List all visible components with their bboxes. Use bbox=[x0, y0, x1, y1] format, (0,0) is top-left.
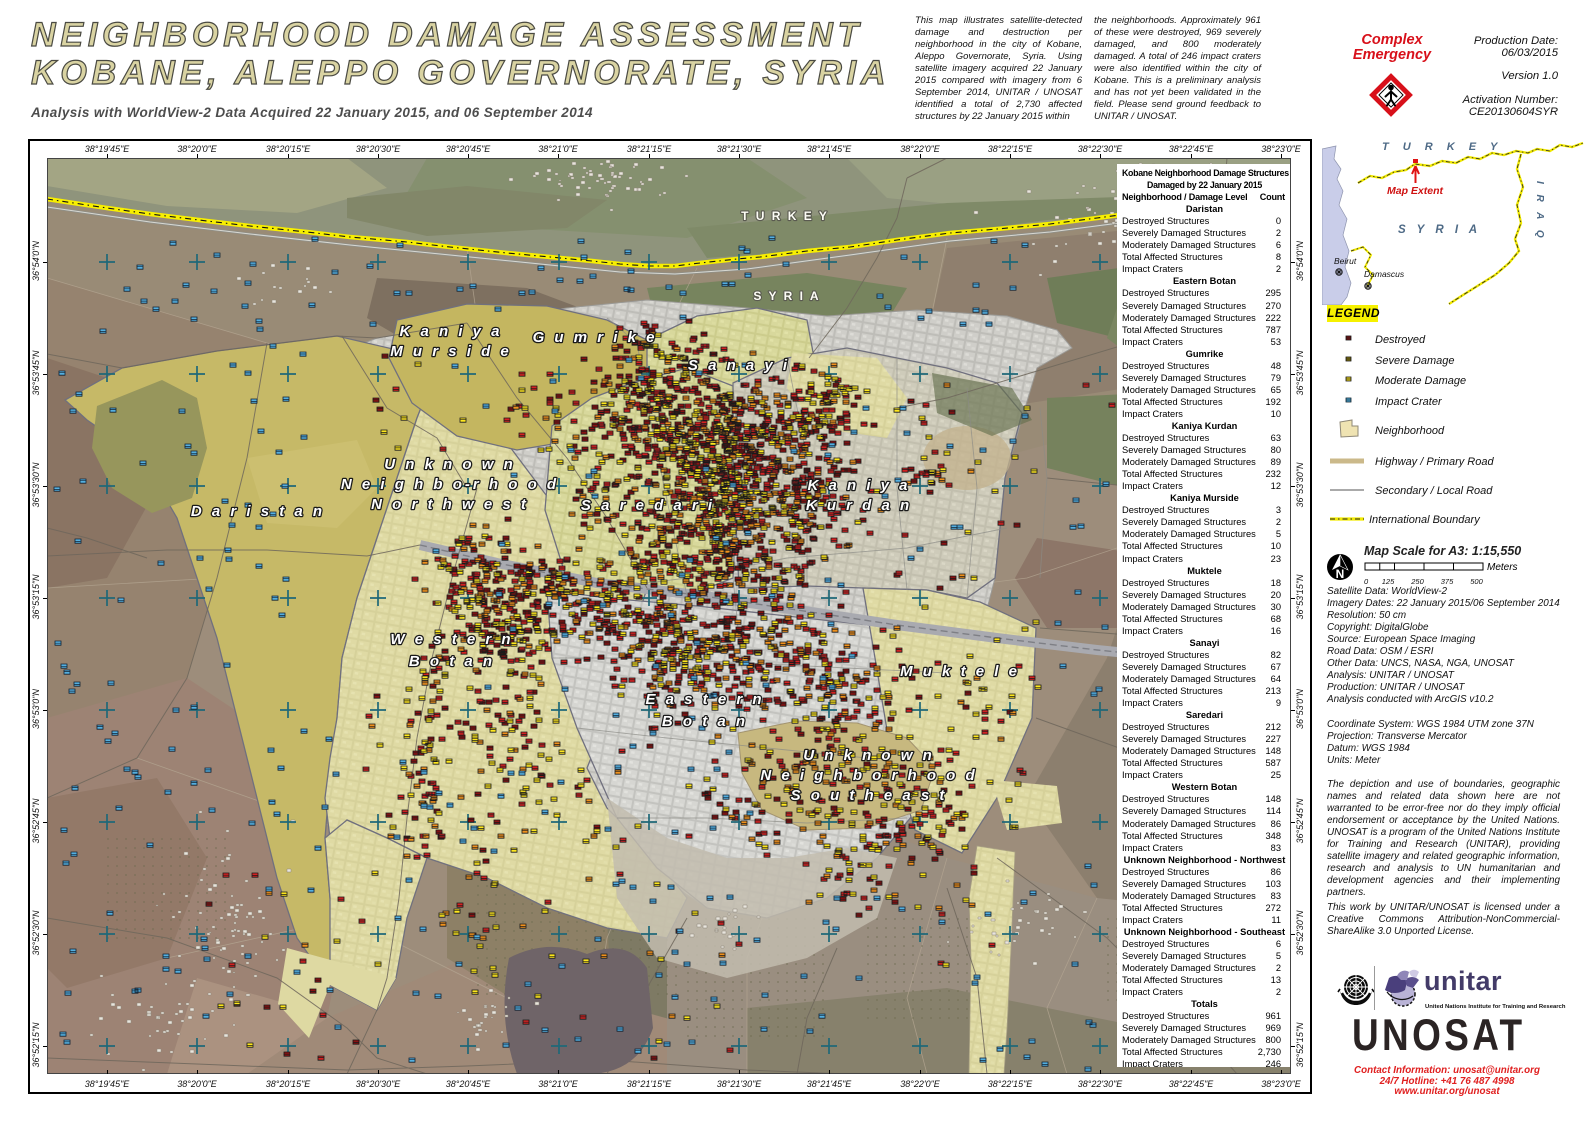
svg-text:B o t a n: B o t a n bbox=[662, 713, 748, 730]
svg-text:Beirut: Beirut bbox=[1334, 256, 1357, 266]
svg-text:Highway / Primary Road: Highway / Primary Road bbox=[1375, 456, 1494, 468]
svg-text:N e i g h b o r h o o d: N e i g h b o r h o o d bbox=[760, 767, 977, 784]
svg-text:Destroyed: Destroyed bbox=[1375, 334, 1426, 346]
svg-text:Moderate Damage: Moderate Damage bbox=[1375, 375, 1466, 387]
svg-text:250: 250 bbox=[1410, 577, 1424, 586]
svg-text:K u r d a n: K u r d a n bbox=[806, 497, 912, 514]
svg-text:D a r i s t a n: D a r i s t a n bbox=[191, 503, 325, 520]
svg-text:K a n i y a: K a n i y a bbox=[399, 323, 502, 340]
svg-text:N: N bbox=[1336, 567, 1345, 581]
svg-text:125: 125 bbox=[1382, 577, 1395, 586]
svg-text:S o u t h e a s t: S o u t h e a s t bbox=[791, 787, 948, 804]
svg-text:Map Extent: Map Extent bbox=[1387, 185, 1444, 197]
svg-text:U n k n o w n: U n k n o w n bbox=[803, 747, 935, 764]
svg-text:Damascus: Damascus bbox=[1364, 269, 1405, 279]
svg-text:S Y R I A: S Y R I A bbox=[753, 289, 820, 303]
svg-text:S a n a y i: S a n a y i bbox=[688, 357, 790, 374]
svg-text:I R A Q: I R A Q bbox=[1534, 181, 1545, 242]
svg-text:375: 375 bbox=[1441, 577, 1454, 586]
svg-text:N e i g h b o-r h o o d: N e i g h b o-r h o o d bbox=[341, 476, 559, 493]
svg-text:G u m r i k e: G u m r i k e bbox=[533, 329, 658, 346]
svg-text:K a n i y a: K a n i y a bbox=[807, 477, 910, 494]
svg-text:U n k n o w n: U n k n o w n bbox=[384, 456, 516, 473]
svg-text:Severe Damage: Severe Damage bbox=[1375, 355, 1455, 367]
svg-text:500: 500 bbox=[1470, 577, 1483, 586]
svg-text:M u r s i d e: M u r s i d e bbox=[390, 343, 512, 360]
svg-text:W e s t e r n: W e s t e r n bbox=[390, 631, 513, 648]
svg-text:E a s t e r n: E a s t e r n bbox=[645, 691, 764, 708]
svg-text:T U R K E Y: T U R K E Y bbox=[1382, 141, 1503, 153]
svg-text:Impact Crater: Impact Crater bbox=[1375, 396, 1443, 408]
svg-text:Secondary / Local Road: Secondary / Local Road bbox=[1375, 485, 1493, 497]
svg-text:S a r e d a r i: S a r e d a r i bbox=[581, 497, 715, 514]
svg-text:T U R K E Y: T U R K E Y bbox=[741, 209, 829, 223]
svg-text:M u k t e l e: M u k t e l e bbox=[900, 663, 1020, 680]
svg-text:N o r t h w e s t: N o r t h w e s t bbox=[371, 496, 529, 513]
svg-text:0: 0 bbox=[1364, 577, 1369, 586]
svg-text:Neighborhood: Neighborhood bbox=[1375, 425, 1445, 437]
svg-text:S Y R I A: S Y R I A bbox=[1398, 224, 1481, 236]
svg-text:B o t a n: B o t a n bbox=[409, 653, 495, 670]
svg-text:International Boundary: International Boundary bbox=[1369, 514, 1481, 526]
